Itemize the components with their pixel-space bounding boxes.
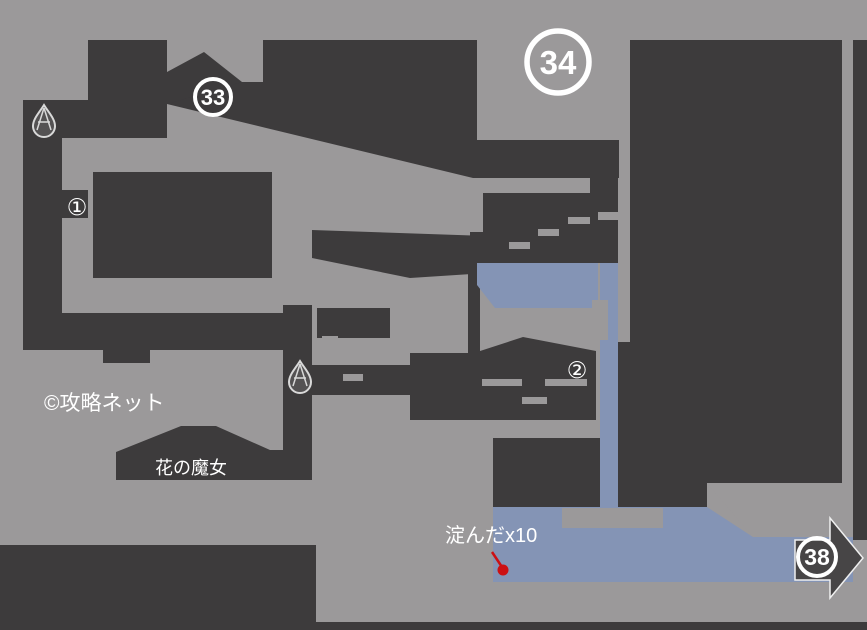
door-gap xyxy=(522,397,547,404)
gate38-number: 38 xyxy=(804,544,830,570)
water-pool-upper xyxy=(477,263,598,308)
door-gap xyxy=(509,242,530,249)
water-platform xyxy=(562,508,663,528)
item-drop-label: 淀んだx10 xyxy=(445,524,537,547)
channel-ledge xyxy=(592,300,608,340)
map-canvas: 33 34 38 ① ② ©攻略ネット 花の魔女 淀んだx10 xyxy=(0,0,867,630)
credit-watermark: ©攻略ネット xyxy=(44,392,164,415)
boss-label: 花の魔女 xyxy=(155,458,227,478)
lower-band-step xyxy=(103,350,150,363)
door-gap xyxy=(343,374,363,381)
door-gap xyxy=(345,352,362,358)
bottom-left-mass xyxy=(0,545,316,622)
door-gap xyxy=(598,212,618,220)
mid-block xyxy=(410,353,477,420)
lower-band xyxy=(23,313,312,350)
game-map: 33 34 38 ① ② ©攻略ネット 花の魔女 淀んだx10 xyxy=(0,0,867,630)
item-point-dot xyxy=(498,565,509,576)
door-gap xyxy=(322,336,338,343)
gate33-number: 33 xyxy=(201,85,225,110)
gate34-number: 34 xyxy=(540,44,577,81)
door-gap xyxy=(482,379,522,386)
bottom-strip xyxy=(0,622,867,630)
item-marker-2: ② xyxy=(567,358,588,384)
door-gap xyxy=(538,229,559,236)
top-left-block xyxy=(88,40,167,105)
door-gap xyxy=(568,217,590,224)
item-marker-1: ① xyxy=(67,195,88,221)
far-right-strip xyxy=(853,40,867,540)
mid-small-block xyxy=(317,308,390,338)
right-building xyxy=(630,40,842,507)
big-room xyxy=(93,172,272,278)
right-corridor-fill xyxy=(618,342,630,507)
bottom-mid-block xyxy=(493,438,600,507)
